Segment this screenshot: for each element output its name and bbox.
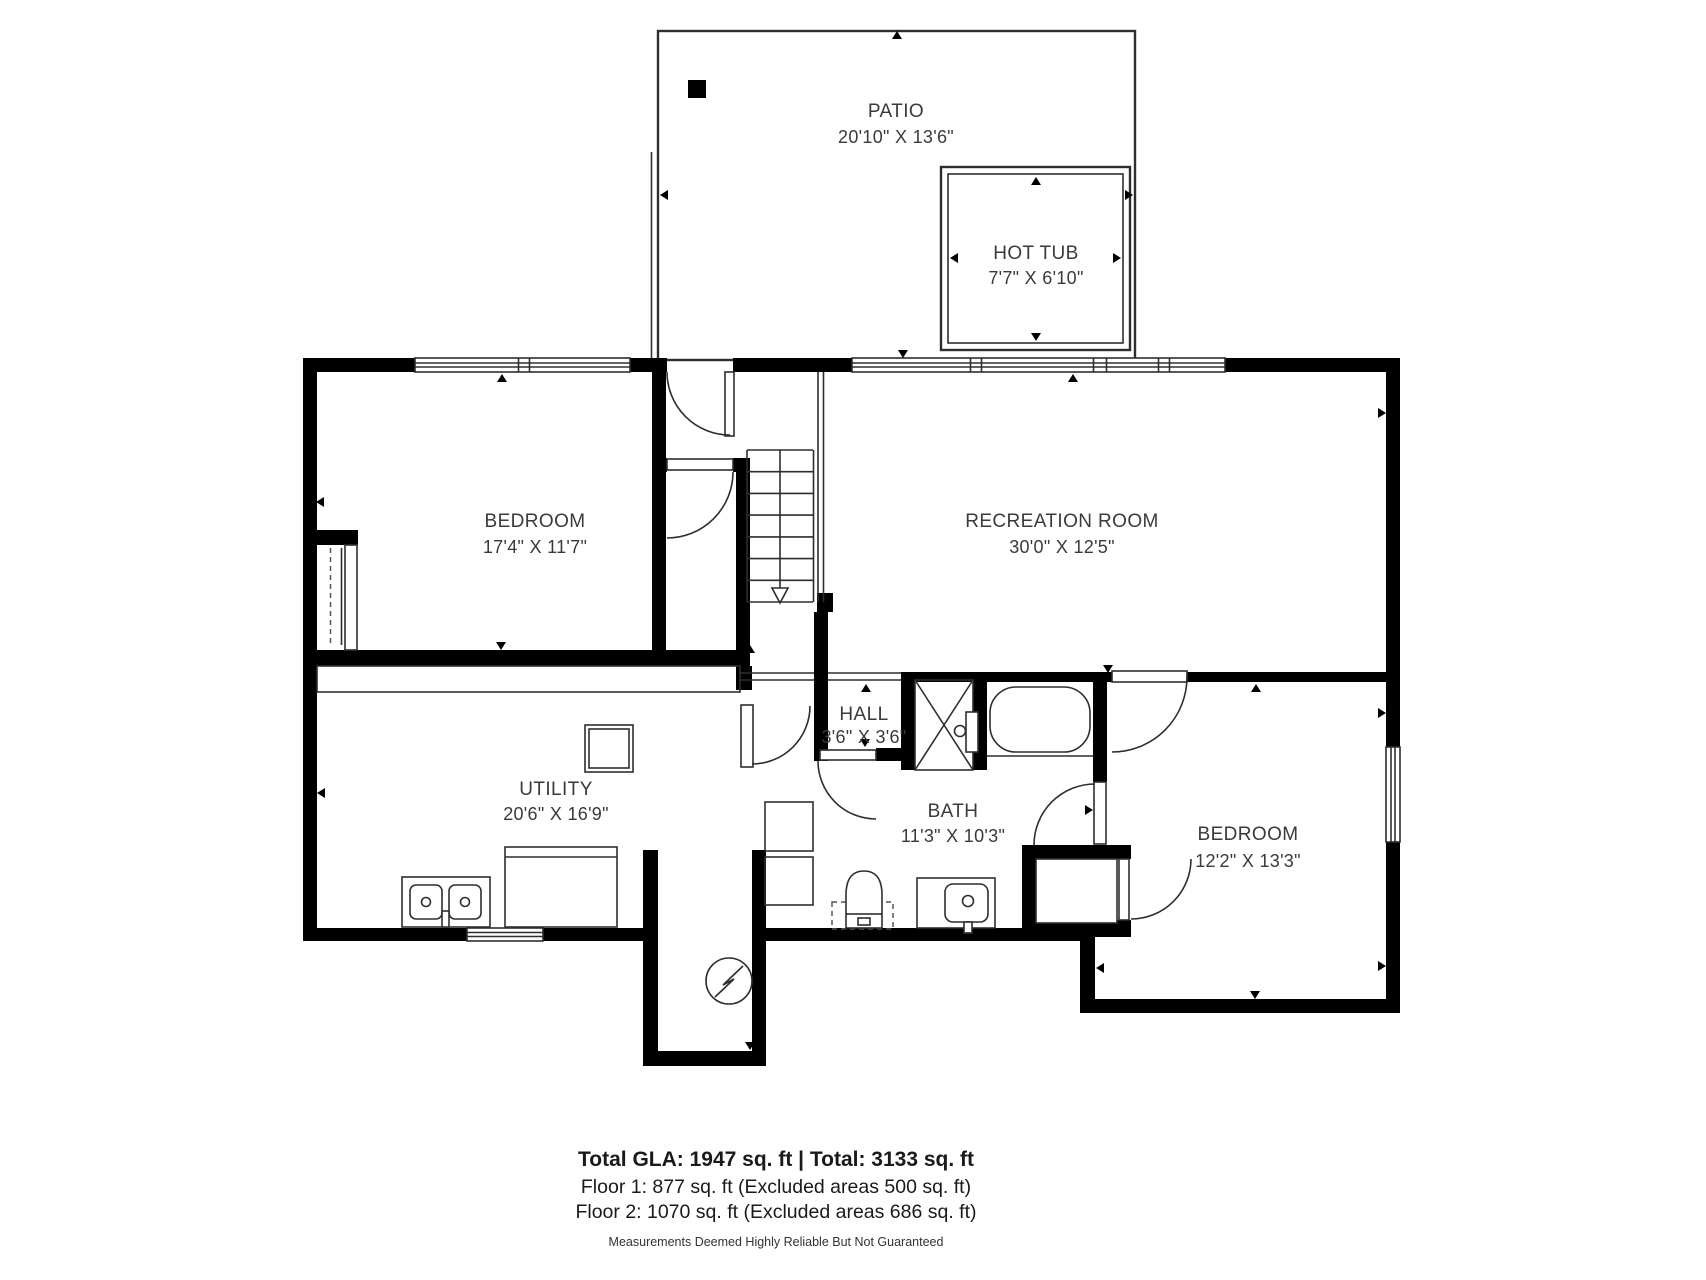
window-icon [467, 928, 543, 941]
closet-door-icon [1119, 859, 1191, 920]
bedroom-left-dims: 17'4" X 11'7" [483, 537, 587, 557]
electrical-panel-icon [706, 958, 752, 1004]
hot-tub-dims: 7'7" X 6'10" [988, 268, 1083, 288]
window-icon [1386, 747, 1400, 842]
footer-totals: Total GLA: 1947 sq. ft | Total: 3133 sq.… [0, 1148, 1552, 1172]
bath-bedroom-door-icon [1034, 782, 1106, 845]
window-icon [415, 358, 630, 372]
bedroom-left-label: BEDROOM [485, 511, 586, 532]
staircase [747, 372, 824, 603]
bedroom-right-label: BEDROOM [1198, 824, 1299, 845]
patio-door-icon [667, 372, 734, 436]
bath-label: BATH [928, 801, 979, 822]
bath-sink-icon [917, 878, 995, 933]
footer-disclaimer: Measurements Deemed Highly Reliable But … [0, 1235, 1552, 1249]
hall-label: HALL [839, 704, 888, 725]
window-icon [852, 358, 1225, 372]
patio-post [688, 80, 706, 98]
bedroom-right-dims: 12'2" X 13'3" [1195, 851, 1301, 871]
patio-label: PATIO [868, 101, 924, 122]
understair-closet-door-icon [667, 459, 733, 538]
utility-label: UTILITY [519, 779, 593, 800]
footer-floor1: Floor 1: 877 sq. ft (Excluded areas 500 … [0, 1176, 1552, 1199]
toilet-icon [832, 871, 893, 929]
sliding-closet-icon [317, 530, 358, 650]
appliance-icon [505, 847, 617, 927]
bathtub-icon [987, 687, 1093, 756]
patio-dims: 20'10" X 13'6" [838, 127, 954, 147]
floor-plan-page: PATIO 20'10" X 13'6" HOT TUB 7'7" X 6'10… [0, 0, 1706, 1280]
recreation-room-label: RECREATION ROOM [965, 511, 1159, 532]
hot-tub-label: HOT TUB [993, 243, 1079, 264]
utility-door-icon [741, 705, 810, 767]
footer-floor2: Floor 2: 1070 sq. ft (Excluded areas 686… [0, 1201, 1552, 1224]
utility-dims: 20'6" X 16'9" [503, 804, 609, 824]
shower-icon [915, 680, 978, 770]
soffit-bulkhead [317, 666, 740, 692]
shelves-icon [765, 802, 813, 905]
patio-outline [652, 31, 1136, 360]
recreation-room-dims: 30'0" X 12'5" [1009, 537, 1115, 557]
closet-interior [1036, 859, 1117, 923]
laundry-sink-icon [402, 877, 490, 927]
bath-dims: 11'3" X 10'3" [901, 826, 1005, 846]
furnace-icon [585, 725, 633, 772]
hall-bath-door-icon [818, 750, 876, 819]
floor-plan-drawing: PATIO 20'10" X 13'6" HOT TUB 7'7" X 6'10… [0, 0, 1706, 1280]
stairs-down-arrow-icon [772, 588, 788, 603]
hall-dims: 3'6" X 3'6" [821, 727, 906, 747]
bedroom-right-door-icon [1112, 671, 1187, 752]
